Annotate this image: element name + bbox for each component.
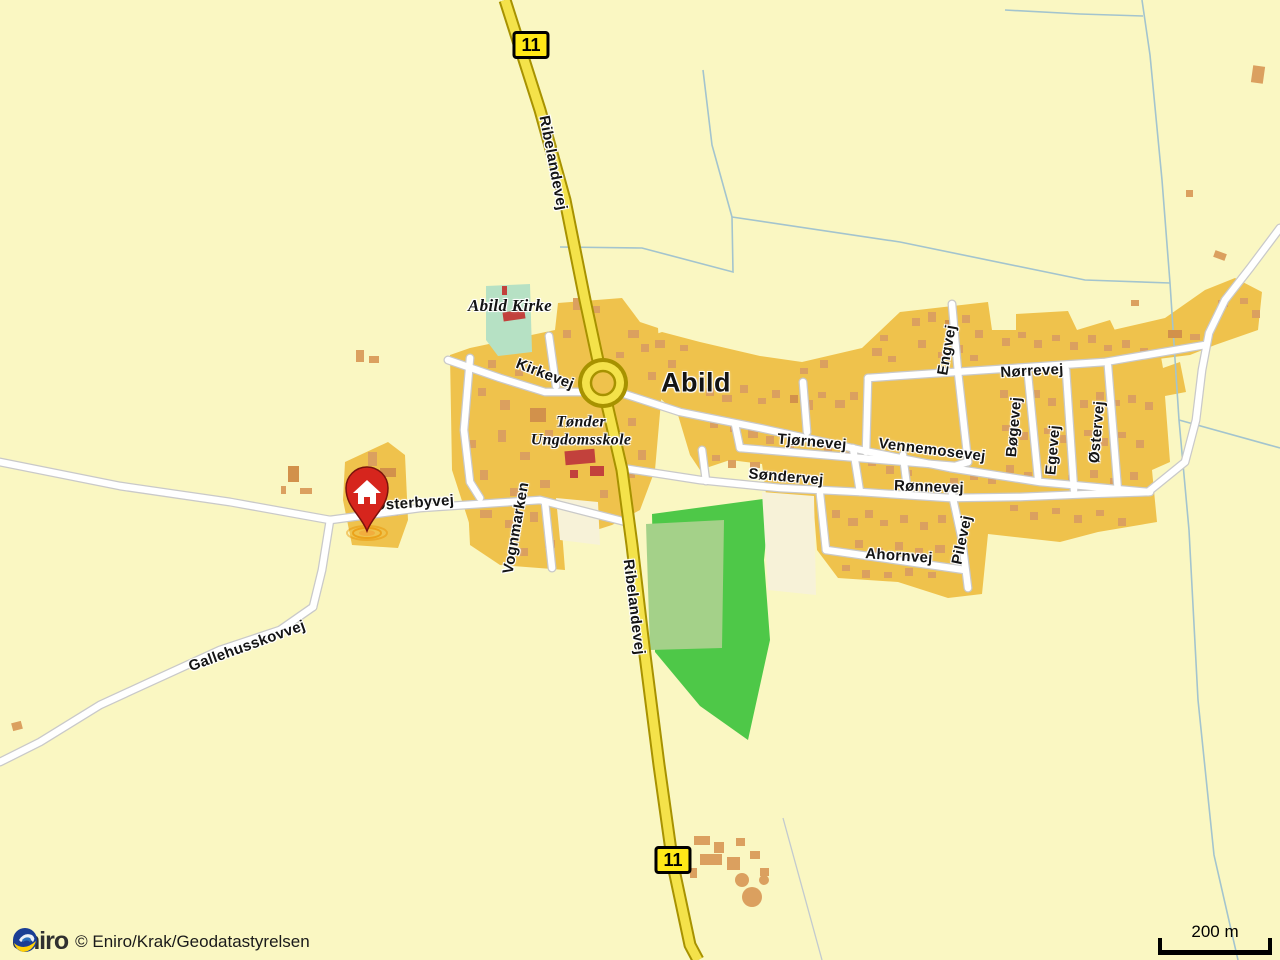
school-label-line2: Ungdomsskole <box>531 432 632 450</box>
home-pin-icon[interactable] <box>330 453 404 553</box>
road-label-norrevej: Nørrevej <box>1000 361 1064 381</box>
copyright-text: © Eniro/Krak/Geodatastyrelsen <box>75 932 310 952</box>
poi-label-tonder-ungdomsskole: Tønder Ungdomsskole <box>531 414 632 451</box>
town-label-abild: Abild <box>661 368 731 399</box>
poi-label-abild-kirke: Abild Kirke <box>468 296 552 316</box>
green-areas <box>646 498 770 740</box>
route-11-badge-bottom: 11 <box>654 846 691 874</box>
attribution-bar: eniro © Eniro/Krak/Geodatastyrelsen <box>12 927 310 956</box>
scale-bar: 200 m <box>1158 922 1272 955</box>
road-label-ronnevej: Rønnevej <box>894 477 964 496</box>
route-11-badge-top: 11 <box>512 31 549 59</box>
school-label-line1: Tønder <box>531 414 632 432</box>
map-canvas[interactable]: 11 11 Ribelandevej Ribelandevej Abild Ki… <box>0 0 1280 960</box>
eniro-swirl-icon[interactable] <box>12 927 38 953</box>
roundabout <box>578 358 628 408</box>
map-svg <box>0 0 1280 960</box>
